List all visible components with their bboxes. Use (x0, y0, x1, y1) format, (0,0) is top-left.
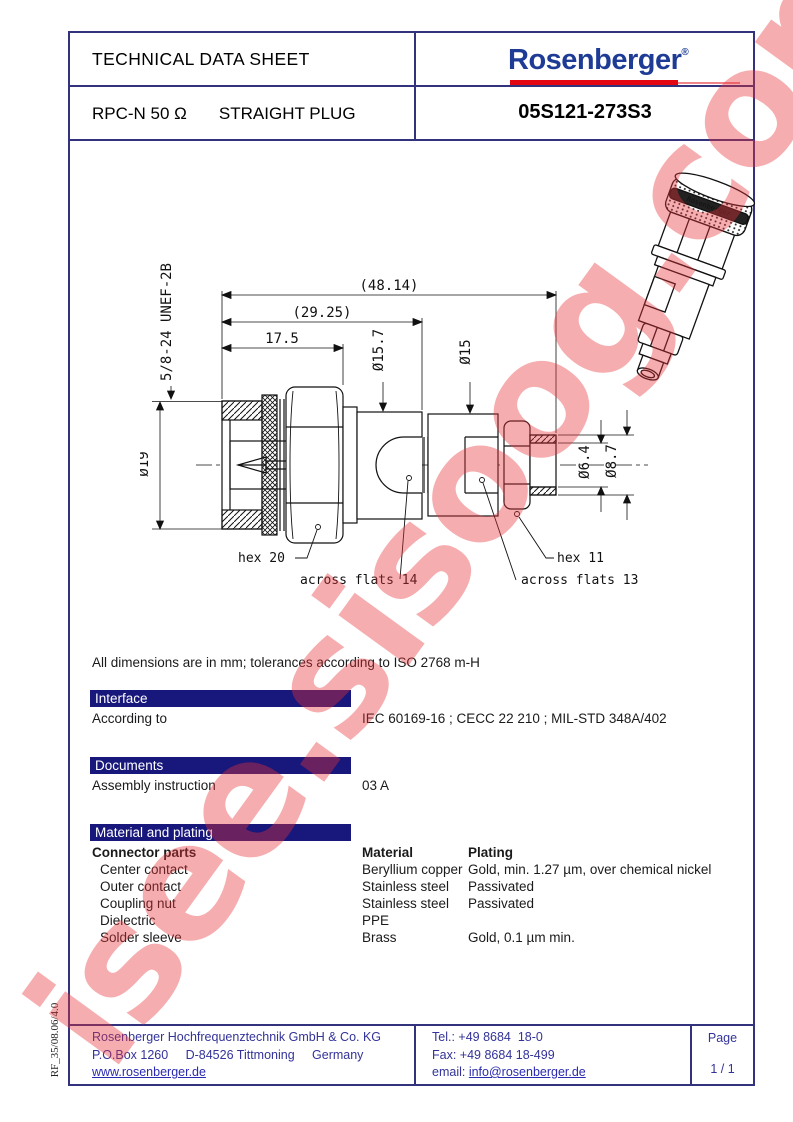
logo-red-line (678, 82, 740, 84)
material-row-part: Center contact (100, 862, 188, 877)
material-row-material: Beryllium copper (362, 862, 463, 877)
logo-wordmark: Rosenberger (508, 44, 681, 76)
material-section-bar: Material and plating (90, 824, 351, 841)
material-row-part: Solder sleeve (100, 930, 182, 945)
footer-top-divider (68, 1024, 755, 1026)
material-col2-header: Material (362, 845, 413, 860)
material-row-plating: Passivated (468, 896, 534, 911)
part-number: 05S121-273S3 (415, 101, 755, 124)
material-row-part: Coupling nut (100, 896, 176, 911)
form-revision-note: RF_35/08.06/4.0 (49, 984, 63, 1096)
callout-across-flats-13: across flats 13 (521, 573, 638, 588)
material-row-material: PPE (362, 913, 389, 928)
product-type: STRAIGHT PLUG (219, 104, 356, 123)
material-col1-header: Connector parts (92, 845, 196, 860)
documents-section-bar: Documents (90, 757, 351, 774)
footer-page-value: 1 / 1 (690, 1061, 755, 1079)
footer-website-link[interactable]: www.rosenberger.de (92, 1065, 206, 1079)
footer-page-block: Page 1 / 1 (690, 1030, 755, 1078)
logo-red-bar (510, 80, 678, 85)
datasheet-page: TECHNICAL DATA SHEET Rosenberger® RPC-N … (0, 0, 793, 1122)
registered-mark: ® (681, 47, 688, 58)
footer-fax: Fax: +49 8684 18-499 (432, 1047, 586, 1065)
dim-dia15-7: Ø15.7 (371, 329, 387, 371)
dim-mid-length: (29.25) (292, 305, 351, 321)
documents-row-value: 03 A (362, 778, 389, 793)
product-title: RPC-N 50 ΩSTRAIGHT PLUG (92, 104, 356, 124)
rosenberger-logo: Rosenberger® (508, 44, 688, 77)
footer-company-block: Rosenberger Hochfrequenztechnik GmbH & C… (92, 1029, 381, 1082)
footer-col-divider-1 (414, 1024, 416, 1086)
interface-row-label: According to (92, 711, 167, 726)
dim-dia8-7: Ø8.7 (604, 444, 620, 478)
title-col-divider (414, 31, 416, 141)
footer-page-label: Page (690, 1030, 755, 1048)
dim-dia15: Ø15 (458, 339, 474, 364)
documents-row-label: Assembly instruction (92, 778, 216, 793)
material-row-material: Stainless steel (362, 879, 449, 894)
callout-across-flats-14: across flats 14 (300, 573, 418, 588)
interface-row-value: IEC 60169-16 ; CECC 22 210 ; MIL-STD 348… (362, 711, 667, 726)
material-row-part: Dielectric (100, 913, 156, 928)
title-row-divider (68, 85, 755, 87)
interface-section-bar: Interface (90, 690, 351, 707)
material-row-plating: Gold, min. 1.27 µm, over chemical nickel (468, 862, 711, 877)
product-photo: Rosenberger (600, 168, 770, 393)
material-row-plating: Passivated (468, 879, 534, 894)
callout-hex11: hex 11 (557, 551, 604, 566)
footer-tel: Tel.: +49 8684 18-0 (432, 1029, 586, 1047)
material-row-material: Brass (362, 930, 397, 945)
footer-email-link[interactable]: info@rosenberger.de (469, 1065, 586, 1079)
thread-label: 5/8-24 UNEF-2B (159, 263, 175, 381)
title-block-bottom (68, 139, 755, 141)
footer-email-label: email: (432, 1065, 469, 1079)
material-col3-header: Plating (468, 845, 513, 860)
dim-front-length: 17.5 (265, 331, 299, 347)
dim-overall-length: (48.14) (359, 278, 418, 294)
footer-address: P.O.Box 1260 D-84526 Tittmoning Germany (92, 1047, 381, 1065)
material-row-material: Stainless steel (362, 896, 449, 911)
dimensions-note: All dimensions are in mm; tolerances acc… (92, 655, 480, 670)
dim-dia6-4: Ø6.4 (577, 445, 593, 479)
callout-hex20: hex 20 (238, 551, 285, 566)
material-row-part: Outer contact (100, 879, 181, 894)
material-row-plating: Gold, 0.1 µm min. (468, 930, 575, 945)
product-series: RPC-N 50 Ω (92, 104, 187, 123)
document-title: TECHNICAL DATA SHEET (92, 49, 310, 70)
dim-dia19: Ø19 (140, 451, 152, 476)
footer-contact-block: Tel.: +49 8684 18-0 Fax: +49 8684 18-499… (432, 1029, 586, 1082)
connector-outline (222, 387, 556, 543)
footer-company: Rosenberger Hochfrequenztechnik GmbH & C… (92, 1029, 381, 1047)
